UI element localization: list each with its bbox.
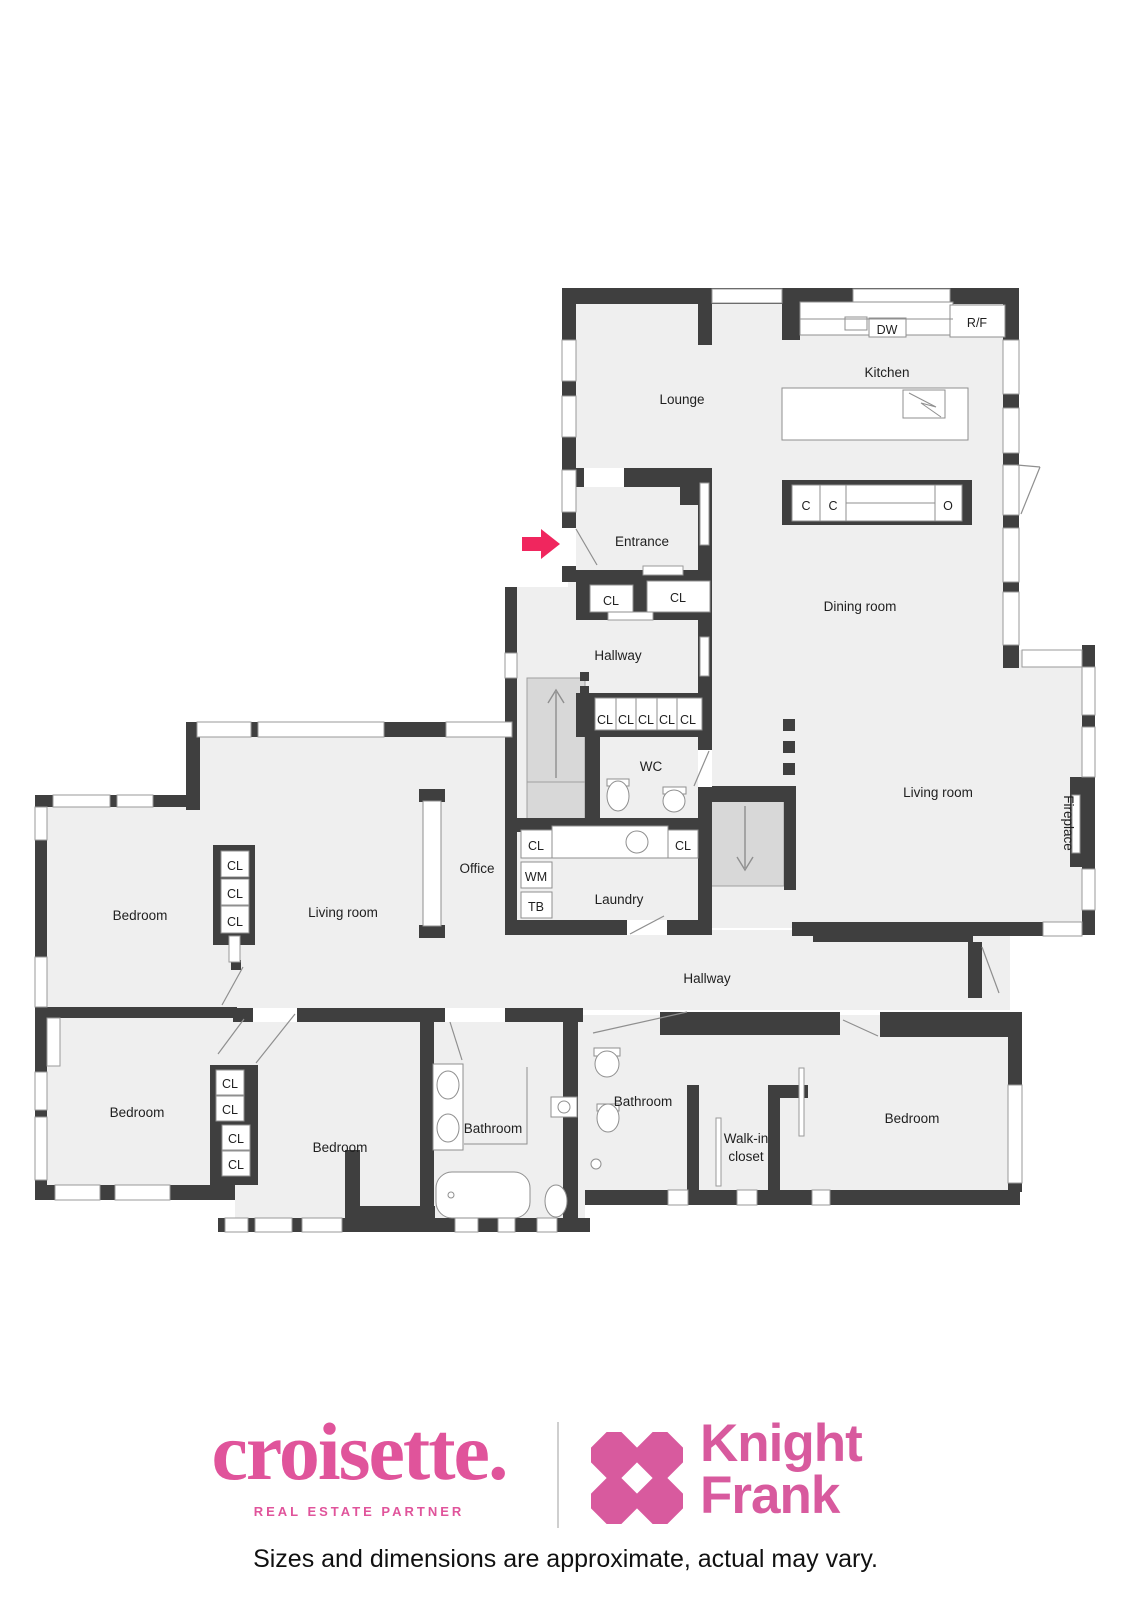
knight-frank-wordmark: Knight Frank: [700, 1418, 862, 1522]
wc-toilet-icon: [607, 781, 629, 811]
footer-branding: croisette. REAL ESTATE PARTNER Knight Fr…: [0, 1408, 1131, 1548]
floor-plan-page: Lounge Kitchen Entrance Dining room Hall…: [0, 0, 1131, 1600]
label-closet: CL: [638, 713, 654, 727]
room-label-laundry: Laundry: [595, 892, 644, 907]
label-washing-machine: WM: [525, 870, 547, 884]
room-label-hallway-lower: Hallway: [683, 971, 731, 986]
knight-frank-line2: Frank: [700, 1470, 862, 1522]
office-partition: [423, 801, 441, 926]
room-label-bedroom-se: Bedroom: [885, 1111, 940, 1126]
room-label-kitchen: Kitchen: [864, 365, 909, 380]
room-label-bedroom-center: Bedroom: [313, 1140, 368, 1155]
label-closet: CL: [222, 1103, 238, 1117]
label-closet: CL: [659, 713, 675, 727]
room-label-lounge: Lounge: [659, 392, 704, 407]
room-label-walk-in-closet-2: closet: [728, 1149, 764, 1164]
room-label-dining-room: Dining room: [824, 599, 897, 614]
room-label-fireplace: Fireplace: [1061, 795, 1076, 851]
label-closet: CL: [597, 713, 613, 727]
sink-icon: [437, 1114, 459, 1142]
label-closet: CL: [603, 594, 619, 608]
room-label-office: Office: [459, 861, 494, 876]
room-label-wc: WC: [640, 759, 663, 774]
room-label-bathroom-1: Bathroom: [464, 1121, 523, 1136]
room-label-bedroom-sw: Bedroom: [110, 1105, 165, 1120]
floor-plan: Lounge Kitchen Entrance Dining room Hall…: [0, 0, 1131, 1600]
toilet-icon: [545, 1185, 567, 1217]
knight-frank-line1: Knight: [700, 1418, 862, 1470]
label-closet: CL: [222, 1077, 238, 1091]
croisette-tagline: REAL ESTATE PARTNER: [193, 1504, 525, 1519]
label-closet: CL: [675, 839, 691, 853]
label-tumble-dryer: TB: [528, 900, 544, 914]
label-cooker: C: [828, 499, 837, 513]
logo-divider: [557, 1422, 559, 1528]
wc-sink-icon: [663, 790, 685, 812]
label-dishwasher: DW: [877, 323, 898, 337]
disclaimer-text: Sizes and dimensions are approximate, ac…: [0, 1545, 1131, 1574]
label-closet: CL: [228, 1158, 244, 1172]
room-label-bathroom-2: Bathroom: [614, 1094, 673, 1109]
label-closet: CL: [228, 1132, 244, 1146]
knight-frank-logo-icon: [591, 1428, 683, 1528]
label-closet: CL: [227, 859, 243, 873]
label-closet: CL: [618, 713, 634, 727]
room-label-entrance: Entrance: [615, 534, 669, 549]
label-closet: CL: [528, 839, 544, 853]
sink-icon: [595, 1051, 619, 1077]
label-fridge-freezer: R/F: [967, 316, 988, 330]
room-label-living-room-right: Living room: [903, 785, 973, 800]
sink-icon: [437, 1071, 459, 1099]
label-closet: CL: [227, 915, 243, 929]
room-label-walk-in-closet-1: Walk-in: [724, 1131, 769, 1146]
label-cooker: C: [801, 499, 810, 513]
laundry-sink-icon: [626, 831, 648, 853]
room-label-bedroom-nw: Bedroom: [113, 908, 168, 923]
label-closet: CL: [227, 887, 243, 901]
label-closet: CL: [680, 713, 696, 727]
entrance-arrow-icon: [522, 529, 560, 559]
croisette-logo: croisette. REAL ESTATE PARTNER: [193, 1414, 525, 1519]
label-oven: O: [943, 499, 953, 513]
croisette-wordmark: croisette.: [193, 1414, 525, 1490]
staircase-down: [706, 800, 784, 886]
label-closet: CL: [670, 591, 686, 605]
shower-tap-icon: [591, 1159, 601, 1169]
room-label-living-room-left: Living room: [308, 905, 378, 920]
room-label-hallway-upper: Hallway: [594, 648, 642, 663]
